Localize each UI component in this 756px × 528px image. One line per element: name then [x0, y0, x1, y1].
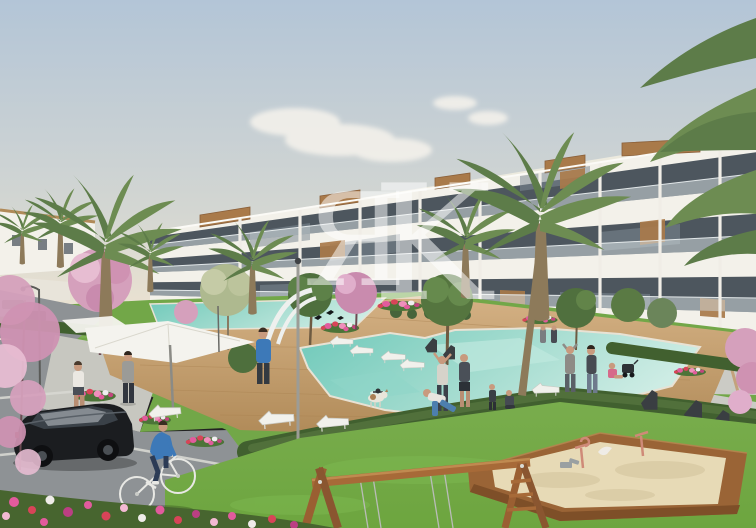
architectural-render: ЯK: [0, 0, 756, 528]
